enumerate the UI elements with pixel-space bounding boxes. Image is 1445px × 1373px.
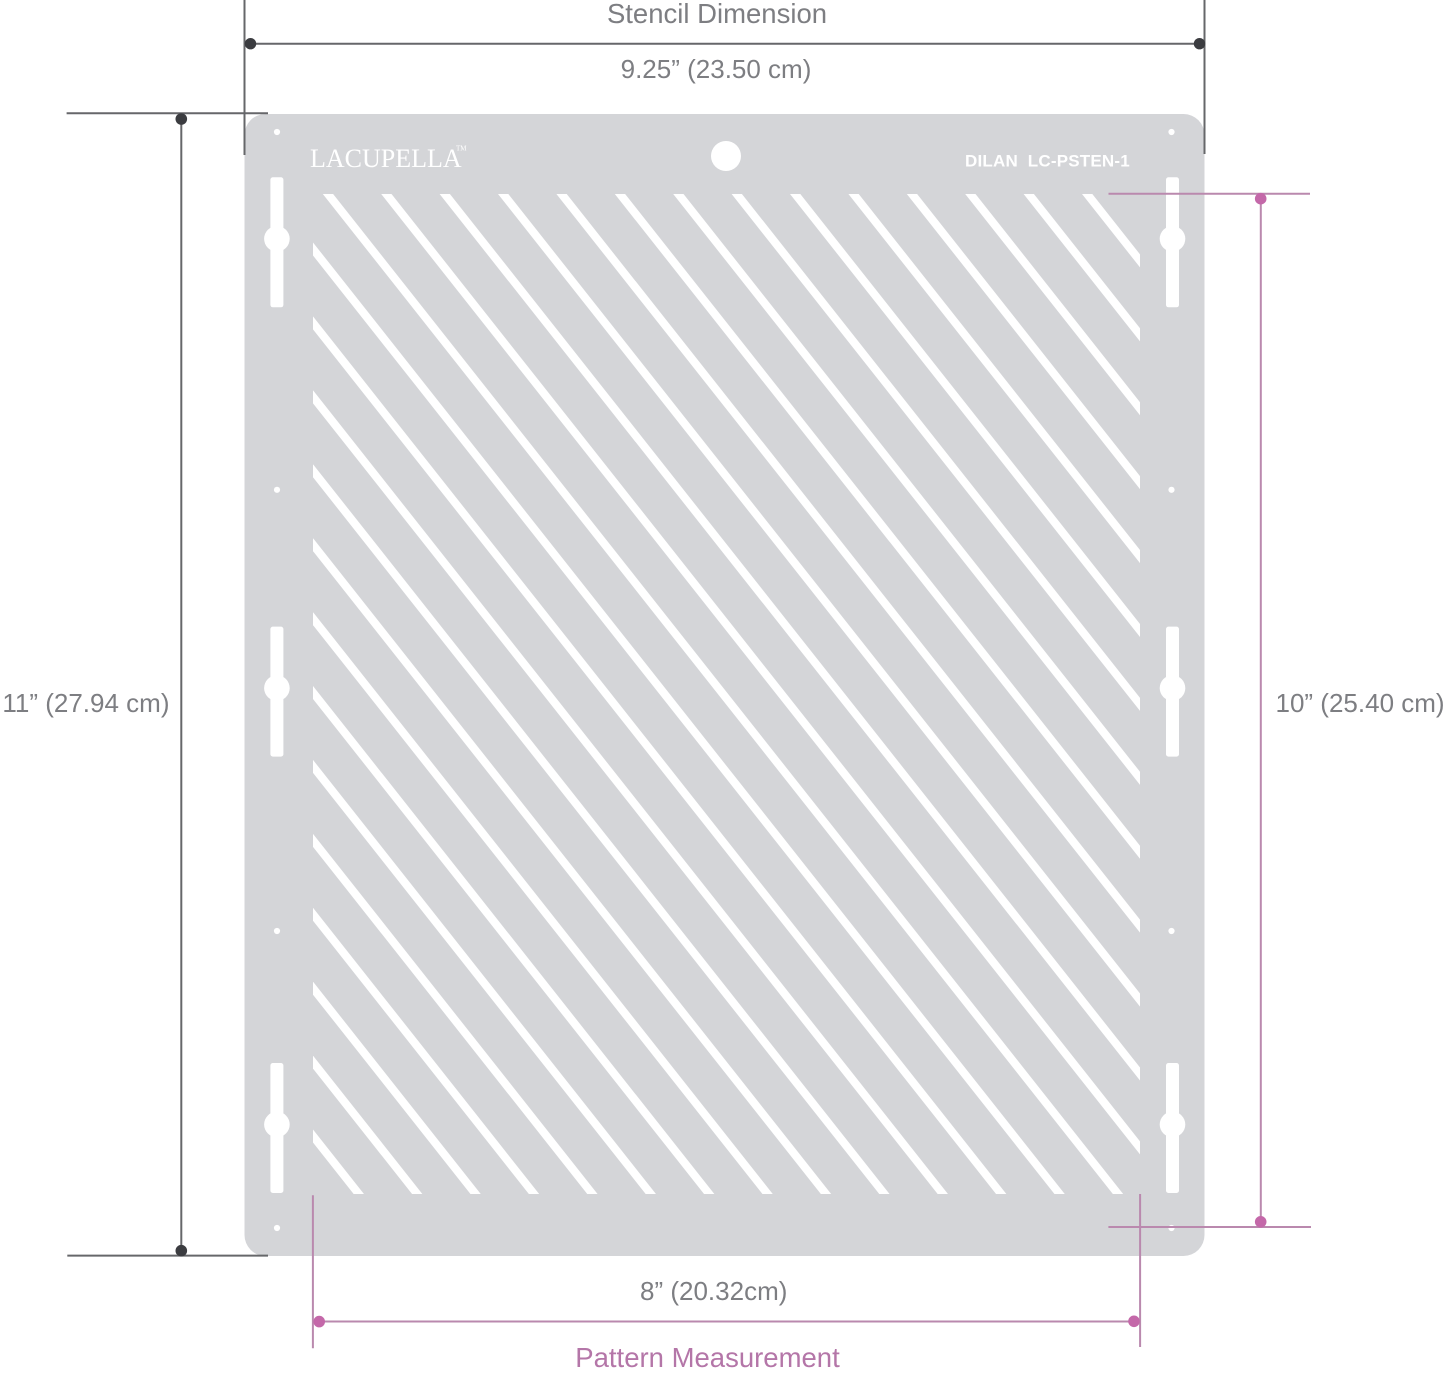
- svg-text:11” (27.94 cm): 11” (27.94 cm): [2, 688, 169, 718]
- svg-text:10” (25.40 cm): 10” (25.40 cm): [1276, 688, 1445, 718]
- svg-text:Stencil Dimension: Stencil Dimension: [607, 0, 827, 29]
- svg-text:TM: TM: [456, 145, 467, 153]
- svg-text:9.25” (23.50 cm): 9.25” (23.50 cm): [621, 54, 812, 84]
- svg-text:Pattern Measurement: Pattern Measurement: [575, 1342, 840, 1373]
- svg-text:LACUPELLA: LACUPELLA: [310, 144, 462, 173]
- svg-text:DILAN LC-PSTEN-1: DILAN LC-PSTEN-1: [965, 152, 1130, 171]
- svg-text:8” (20.32cm): 8” (20.32cm): [640, 1276, 787, 1306]
